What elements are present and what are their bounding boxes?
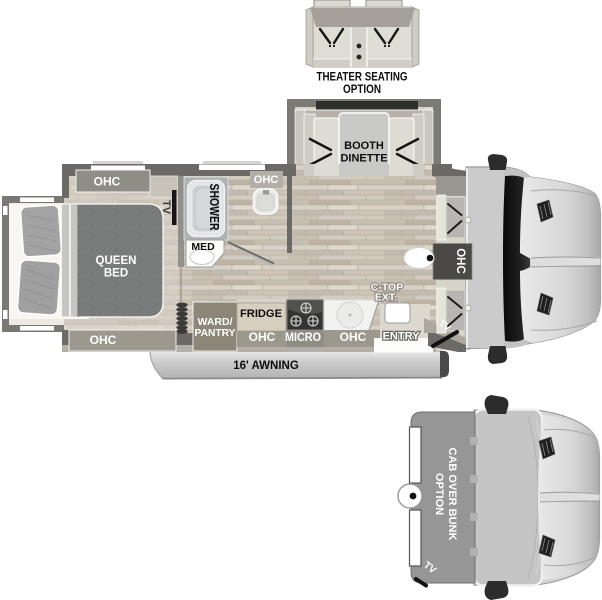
svg-text:BED: BED (104, 268, 128, 280)
svg-text:OHC: OHC (254, 174, 279, 186)
svg-text:OPTION: OPTION (433, 473, 445, 515)
svg-text:OHC: OHC (249, 330, 276, 344)
svg-text:TV: TV (160, 200, 172, 215)
svg-text:16' AWNING: 16' AWNING (233, 360, 299, 372)
svg-text:MED: MED (191, 241, 215, 253)
svg-text:ENTRY: ENTRY (383, 331, 421, 343)
svg-text:MICRO: MICRO (285, 330, 321, 344)
svg-text:BOOTH: BOOTH (344, 140, 384, 152)
svg-text:SHOWER: SHOWER (207, 184, 221, 231)
svg-text:OPTION: OPTION (343, 82, 381, 96)
svg-text:EXT.: EXT. (375, 292, 397, 304)
svg-text:DINETTE: DINETTE (340, 153, 387, 165)
svg-text:CAB OVER BUNK: CAB OVER BUNK (446, 448, 458, 541)
svg-text:PANTRY: PANTRY (195, 327, 236, 339)
svg-text:FRIDGE: FRIDGE (240, 308, 282, 320)
svg-text:OHC: OHC (340, 330, 367, 344)
svg-text:OHC: OHC (94, 175, 121, 189)
svg-text:QUEEN: QUEEN (96, 255, 137, 267)
svg-text:OHC: OHC (90, 333, 117, 347)
svg-text:OHC: OHC (454, 248, 466, 274)
